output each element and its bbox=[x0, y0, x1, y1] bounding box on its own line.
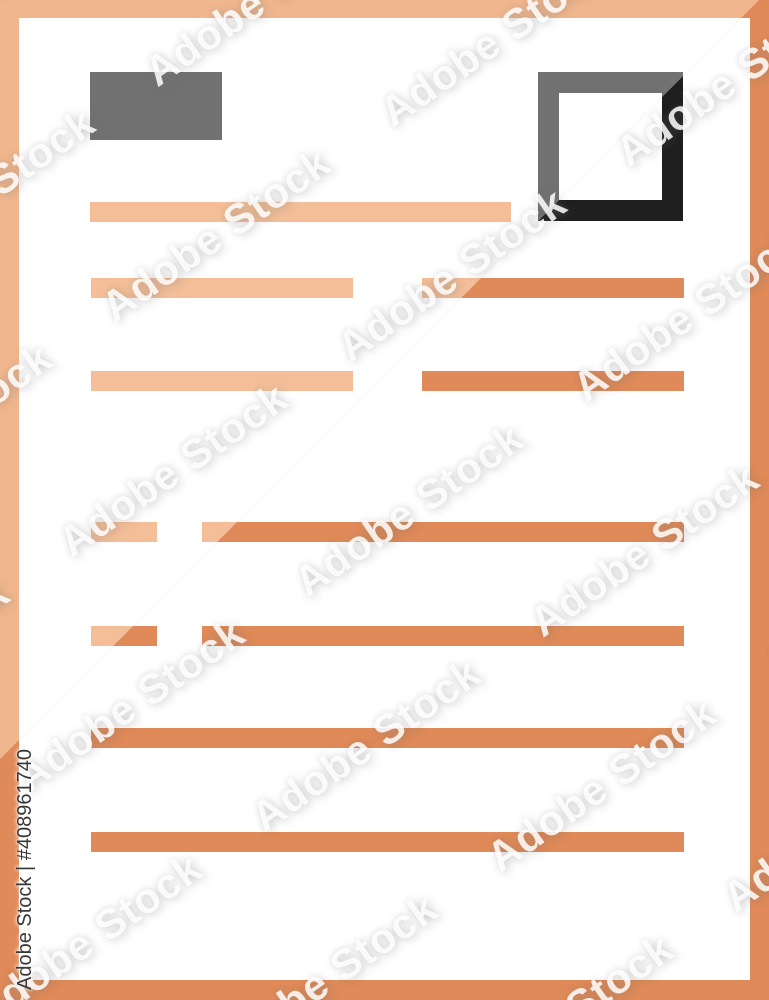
photo-placeholder-rect bbox=[90, 72, 222, 140]
title-line-bar bbox=[90, 202, 511, 222]
text-line-bar bbox=[91, 371, 353, 391]
stock-illustration-document-icon: Adobe StockAdobe StockAdobe StockAdobe S… bbox=[0, 0, 769, 1000]
text-line-bar bbox=[202, 626, 684, 646]
text-line-bar bbox=[91, 278, 353, 298]
text-line-bar bbox=[202, 522, 684, 542]
text-line-bar bbox=[91, 728, 684, 748]
text-line-bar bbox=[422, 371, 684, 391]
label-bar bbox=[91, 522, 157, 542]
text-line-bar bbox=[91, 832, 684, 852]
